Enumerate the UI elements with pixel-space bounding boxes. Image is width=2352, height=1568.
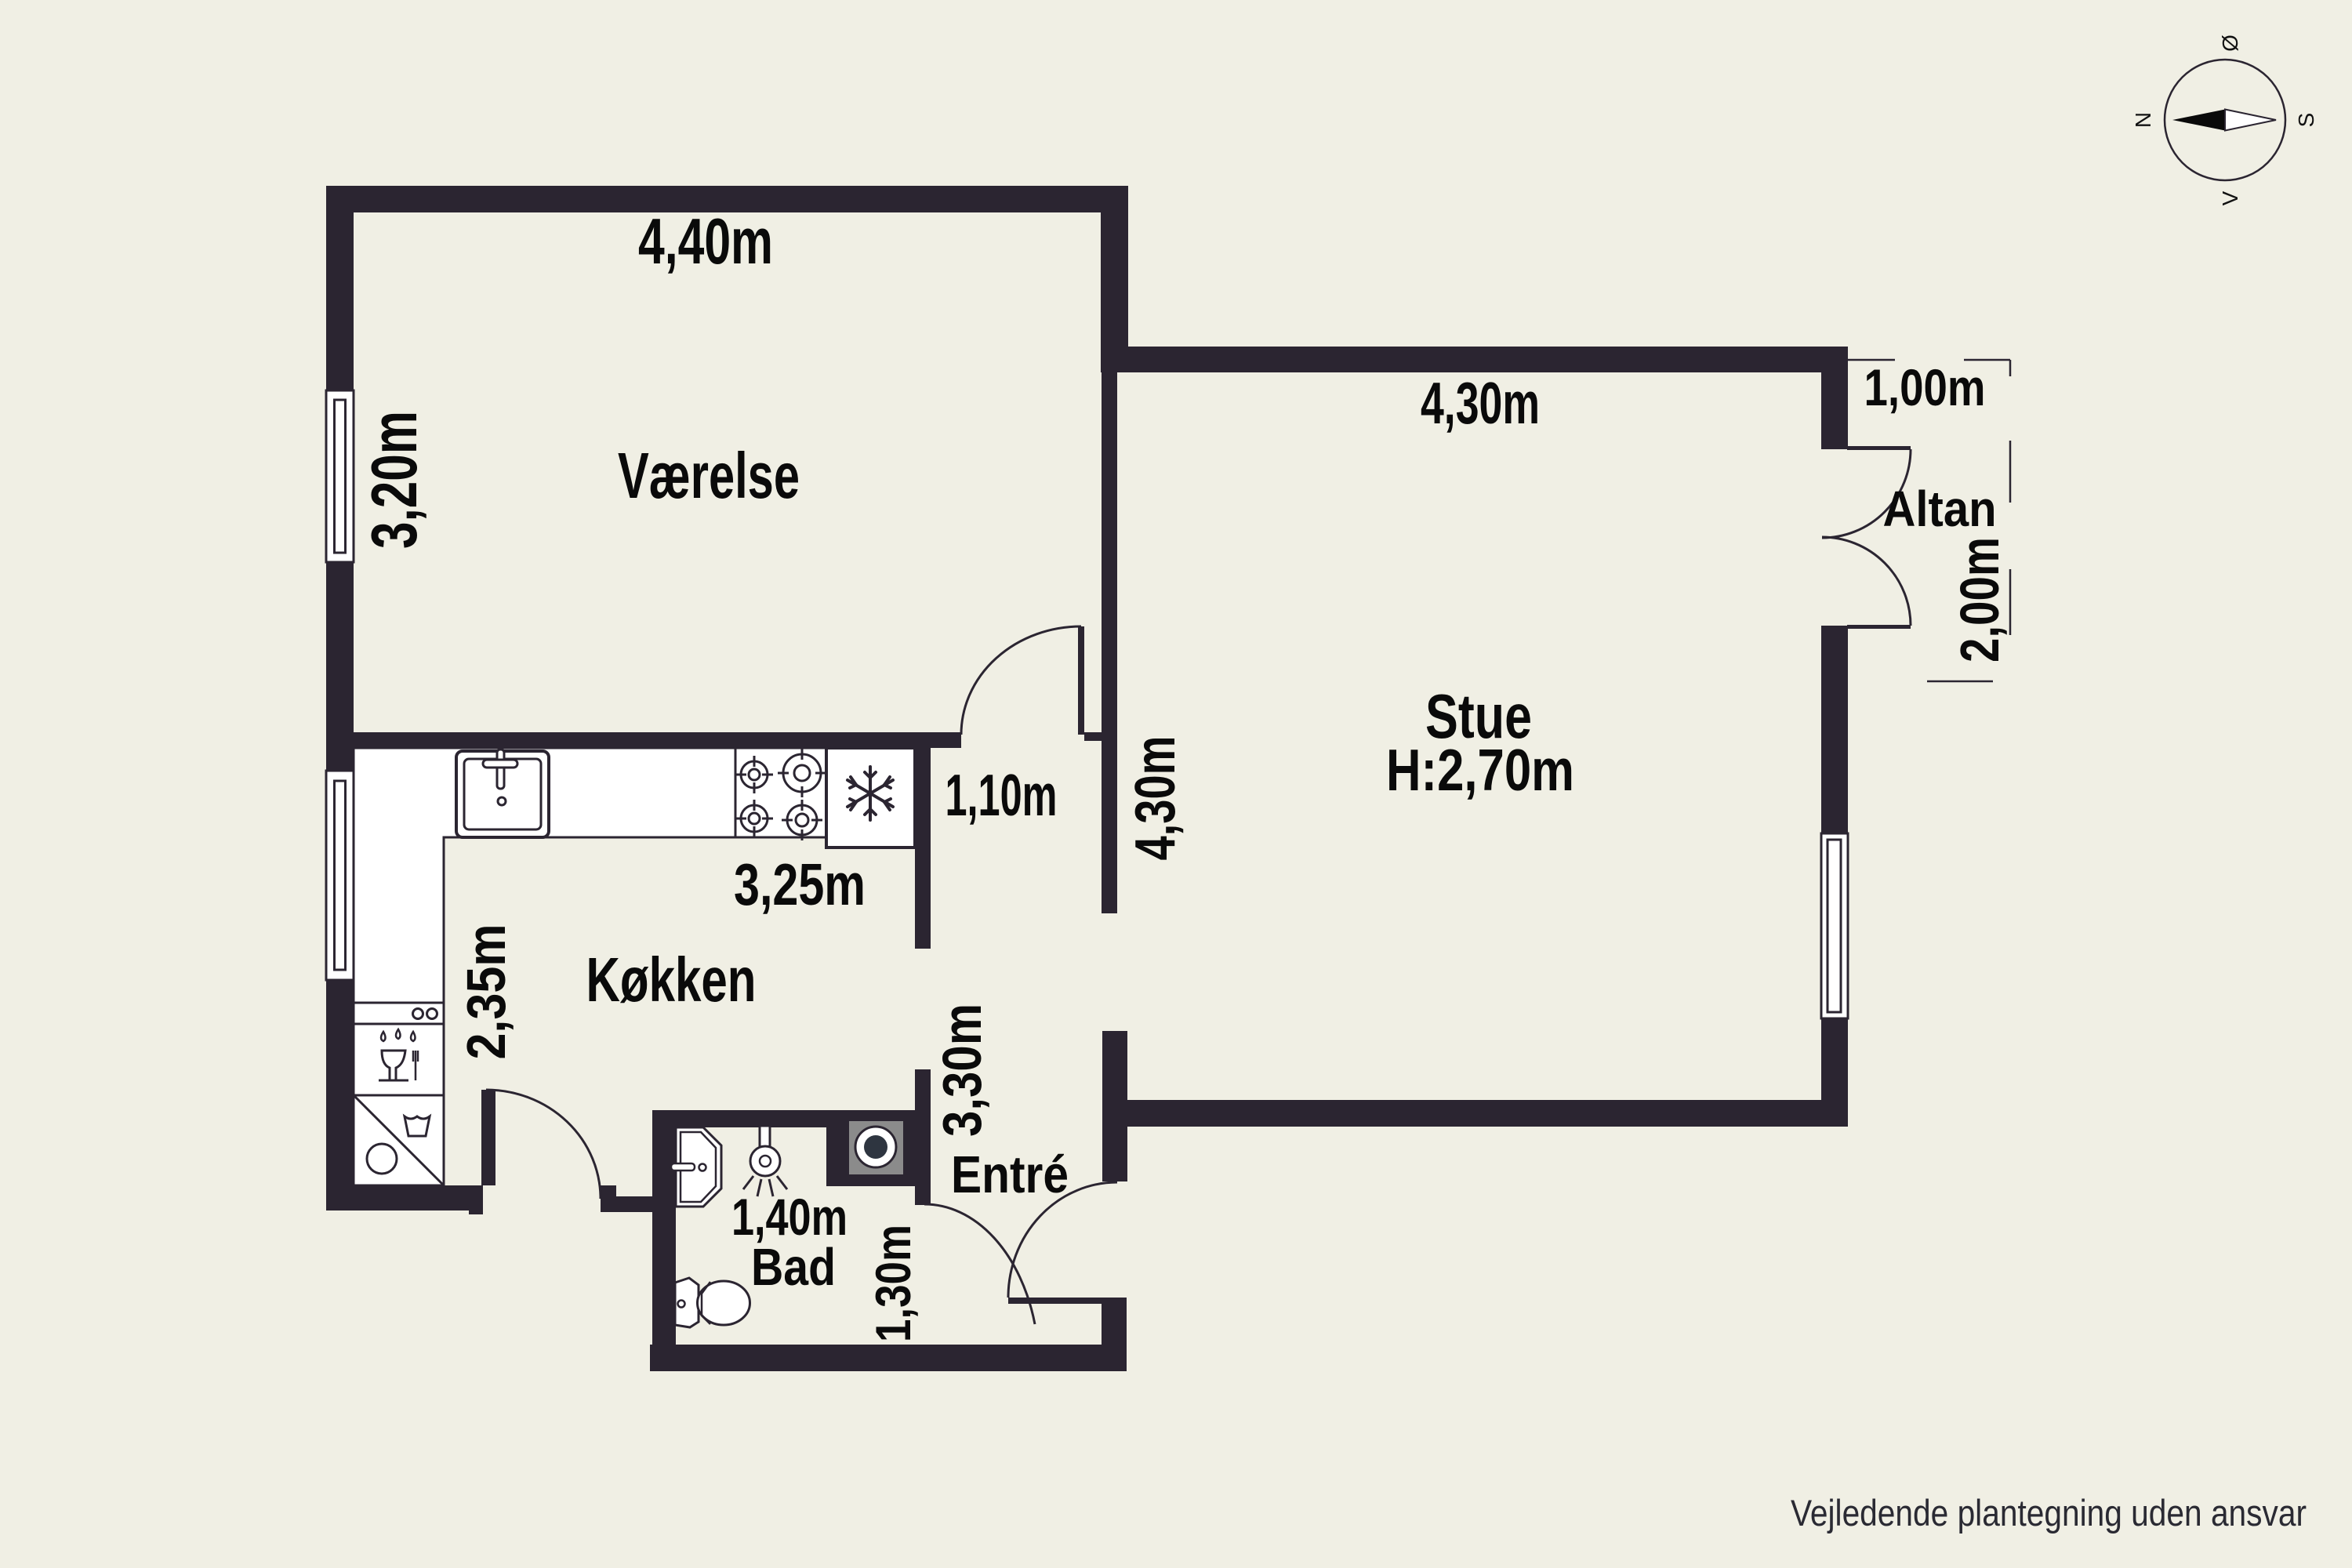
- svg-text:3,20m: 3,20m: [358, 411, 430, 549]
- svg-text:Altan: Altan: [1883, 481, 1997, 537]
- svg-text:2,35m: 2,35m: [456, 924, 517, 1060]
- svg-text:Ø: Ø: [2218, 34, 2242, 52]
- svg-text:Værelse: Værelse: [618, 439, 800, 512]
- svg-text:3,30m: 3,30m: [931, 1004, 993, 1137]
- svg-text:Vejledende plantegning uden an: Vejledende plantegning uden ansvar: [1791, 1492, 2307, 1534]
- svg-text:S: S: [2294, 113, 2318, 128]
- svg-text:3,25m: 3,25m: [734, 851, 866, 917]
- svg-text:H:2,70m: H:2,70m: [1386, 737, 1574, 803]
- svg-text:1,30m: 1,30m: [866, 1225, 921, 1342]
- svg-text:4,30m: 4,30m: [1124, 736, 1187, 861]
- svg-text:Entré: Entré: [951, 1145, 1069, 1204]
- svg-text:Køkken: Køkken: [586, 945, 757, 1014]
- svg-text:1,10m: 1,10m: [946, 762, 1058, 828]
- svg-text:1,00m: 1,00m: [1864, 358, 1986, 416]
- svg-text:4,40m: 4,40m: [638, 205, 773, 278]
- svg-text:Bad: Bad: [751, 1238, 836, 1297]
- svg-text:N: N: [2131, 112, 2155, 128]
- svg-text:4,30m: 4,30m: [1421, 370, 1540, 436]
- svg-text:2,00m: 2,00m: [1949, 537, 2010, 662]
- svg-text:V: V: [2218, 191, 2242, 205]
- svg-text:1,40m: 1,40m: [731, 1188, 848, 1246]
